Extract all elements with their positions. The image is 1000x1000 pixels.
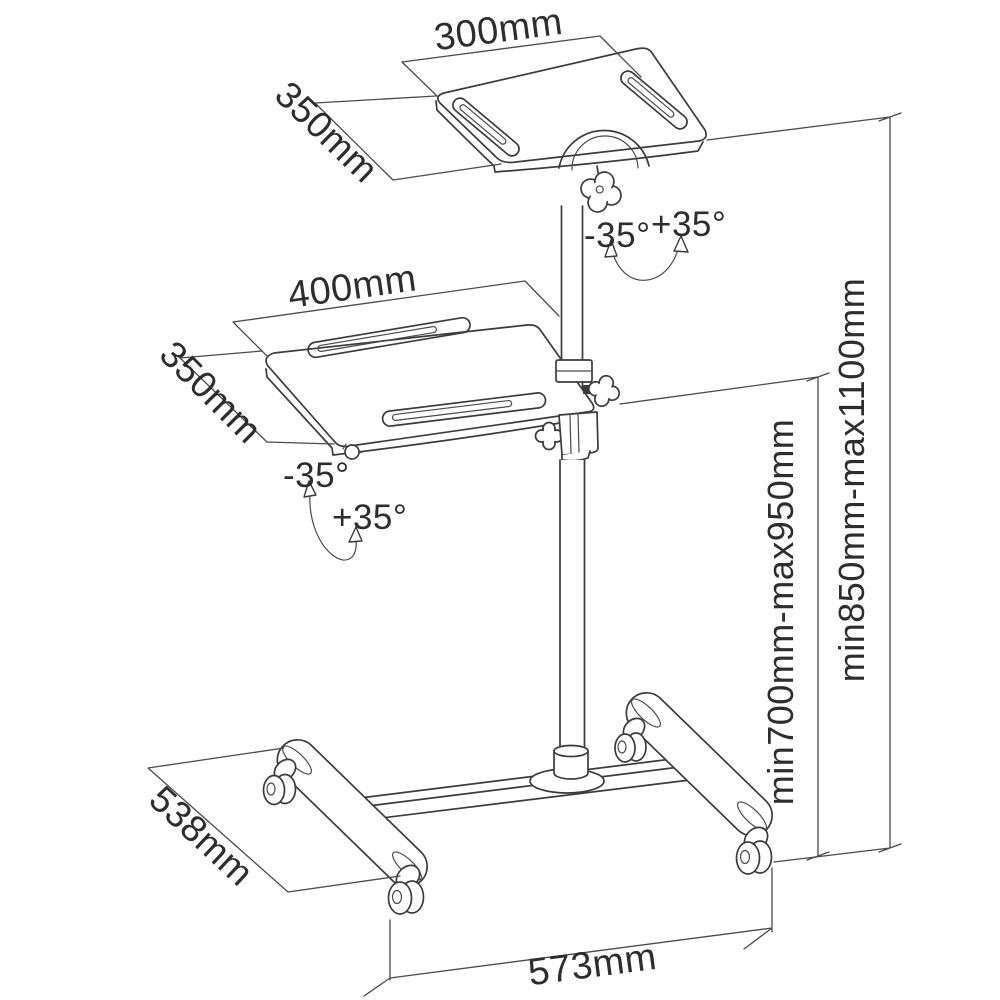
label-middle-height: min700mm-max950mm — [760, 419, 801, 806]
base-crossbar — [349, 757, 690, 822]
label-middle-depth: 350mm — [152, 333, 270, 451]
label-overall-height: min850mm-max1100mm — [831, 278, 872, 682]
label-middle-width: 400mm — [285, 257, 419, 317]
base-rail-right — [626, 693, 772, 836]
label-top-depth: 350mm — [267, 74, 386, 191]
pole-joint-sleeve — [556, 360, 592, 382]
projector-trolley-diagram: 300mm 350mm 400mm 350mm -35° +35° -35° +… — [0, 0, 1000, 1000]
pole-base-collar — [554, 746, 588, 780]
top-platform — [436, 48, 706, 172]
label-base-depth: 538mm — [142, 778, 262, 894]
label-top-width: 300mm — [432, 1, 566, 60]
caster-back-right — [615, 714, 649, 762]
label-top-tilt-negative: -35° — [584, 216, 651, 255]
technical-drawing-page: 300mm 350mm 400mm 350mm -35° +35° -35° +… — [0, 0, 1000, 1000]
base-rail-left — [277, 740, 427, 887]
lower-pole — [559, 460, 585, 753]
label-base-width: 573mm — [526, 936, 660, 995]
label-middle-tilt-negative: -35° — [283, 456, 350, 495]
height-clamp — [536, 412, 599, 461]
label-top-tilt-positive: +35° — [651, 205, 726, 244]
label-middle-tilt-positive: +35° — [332, 498, 407, 537]
